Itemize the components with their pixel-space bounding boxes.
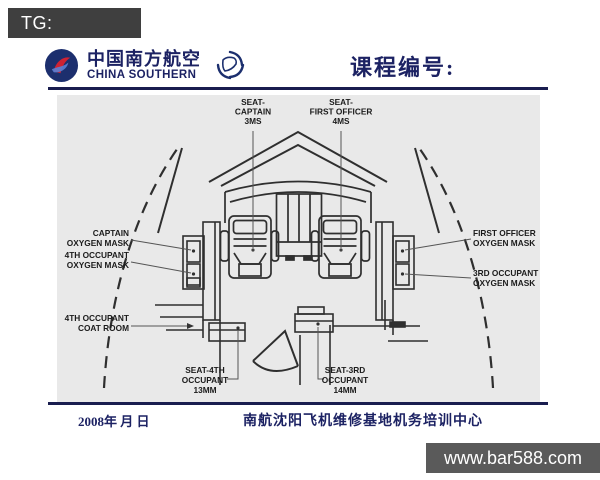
label-seat4-line1: SEAT-4TH [185, 365, 225, 375]
label-seat-fo-line1: SEAT- [329, 97, 353, 107]
label-captain-oxy-line1: CAPTAIN [93, 228, 129, 238]
china-southern-roundel-icon [44, 48, 79, 83]
label-occ3-oxy-line1: 3RD OCCUPANT [473, 268, 538, 278]
label-seat-first-officer: SEAT- FIRST OFFICER 4MS [310, 97, 373, 126]
footer-rule [48, 402, 548, 405]
airline-name-en: CHINA SOUTHERN [87, 69, 201, 81]
label-occ4-oxy-line2: OXYGEN MASK [67, 260, 129, 270]
center-pedestal [277, 194, 322, 260]
skyteam-icon [211, 46, 249, 84]
left-oxygen-mask-stowage [183, 236, 204, 289]
label-seat4-line3: 13MM [193, 385, 216, 395]
cockpit-diagram: SEAT- CAPTAIN 3MS SEAT- FIRST OFFICER 4M… [57, 95, 540, 402]
label-occupant4-coat-room: 4TH OCCUPANT COAT ROOM [65, 313, 129, 333]
label-fo-oxy-line1: FIRST OFFICER [473, 228, 536, 238]
watermark-top-left: TG: MYYJJPP [8, 8, 141, 38]
footer-date: 2008年 月 日 [78, 411, 150, 430]
airline-name-cn: 中国南方航空 [87, 50, 201, 69]
label-captain-oxy-line2: OXYGEN MASK [67, 238, 129, 248]
occupant4-fold-seat [209, 323, 245, 341]
slide: TG: MYYJJPP 中国南方航空 CHINA SOUTHERN 课程编号: [0, 0, 600, 480]
occupant3-fold-seat [295, 307, 333, 332]
header-rule [48, 87, 548, 90]
label-occupant3-oxygen-mask: 3RD OCCUPANT OXYGEN MASK [473, 268, 538, 288]
label-seat3-line3: 14MM [333, 385, 356, 395]
label-seat4-line2: OCCUPANT [182, 375, 228, 385]
course-number-label: 课程编号: [350, 50, 455, 82]
label-seat-captain: SEAT- CAPTAIN 3MS [235, 97, 271, 126]
footer-training-center: 南航沈阳飞机维修基地机务培训中心 [243, 410, 483, 430]
label-seat-captain-line3: 3MS [244, 116, 262, 126]
label-seat-occupant3: SEAT-3RD OCCUPANT 14MM [322, 365, 368, 395]
label-coat-room-line1: 4TH OCCUPANT [65, 313, 129, 323]
label-coat-room-line2: COAT ROOM [78, 323, 129, 333]
label-seat-captain-line2: CAPTAIN [235, 107, 271, 117]
cockpit-door [253, 331, 298, 371]
label-occ3-oxy-line2: OXYGEN MASK [473, 278, 535, 288]
airline-names: 中国南方航空 CHINA SOUTHERN [87, 50, 201, 81]
nose-structure [209, 132, 387, 186]
captain-seat [221, 216, 279, 278]
label-seat-fo-line3: 4MS [332, 116, 350, 126]
cockpit-diagram-svg: SEAT- CAPTAIN 3MS SEAT- FIRST OFFICER 4M… [57, 95, 540, 402]
label-seat3-line1: SEAT-3RD [325, 365, 365, 375]
label-seat-occupant4: SEAT-4TH OCCUPANT 13MM [182, 365, 228, 395]
label-seat3-line2: OCCUPANT [322, 375, 368, 385]
watermark-bottom-right: www.bar588.com [426, 443, 600, 473]
airline-logo-block: 中国南方航空 CHINA SOUTHERN [44, 46, 249, 84]
label-fo-oxy-line2: OXYGEN MASK [473, 238, 535, 248]
label-occ4-oxy-line1: 4TH OCCUPANT [65, 250, 129, 260]
label-seat-fo-line2: FIRST OFFICER [310, 107, 373, 117]
label-seat-captain-line1: SEAT- [241, 97, 265, 107]
label-captain-oxygen-mask: CAPTAIN OXYGEN MASK [67, 228, 129, 248]
label-occupant4-oxygen-mask: 4TH OCCUPANT OXYGEN MASK [65, 250, 129, 270]
right-oxygen-mask-stowage [393, 236, 414, 289]
coat-room-arrowhead [187, 323, 194, 329]
label-first-officer-oxygen-mask: FIRST OFFICER OXYGEN MASK [473, 228, 536, 248]
